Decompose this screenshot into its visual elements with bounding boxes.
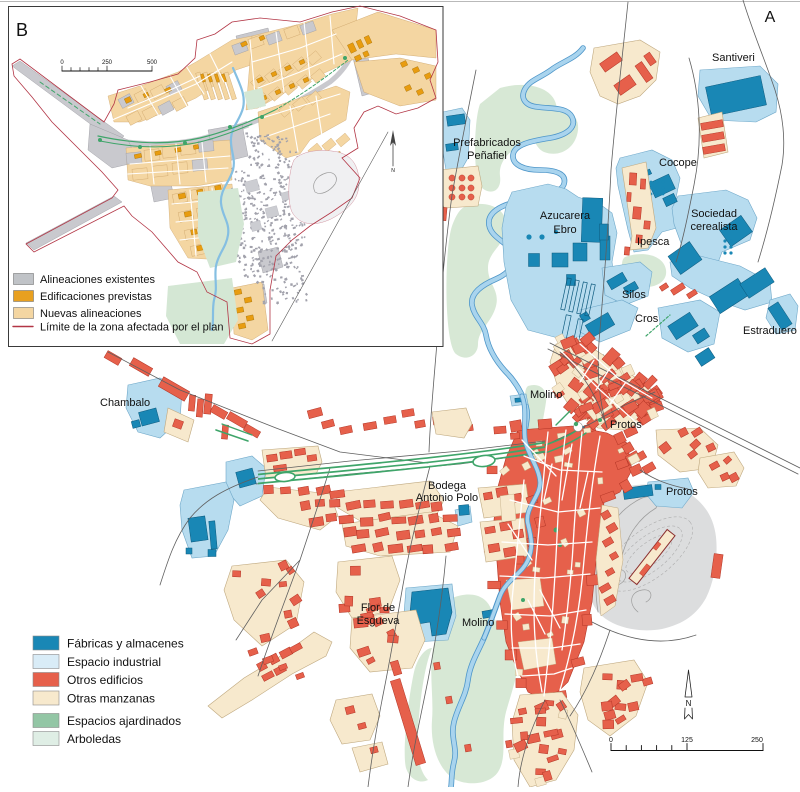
svg-text:Protos: Protos <box>666 486 698 498</box>
svg-text:Estraduero: Estraduero <box>743 325 797 337</box>
svg-text:Otras manzanas: Otras manzanas <box>67 692 155 706</box>
svg-text:250: 250 <box>751 737 763 744</box>
svg-text:B: B <box>16 20 28 40</box>
svg-text:Esgueva: Esgueva <box>357 615 401 627</box>
svg-text:Cocope: Cocope <box>659 157 697 169</box>
svg-text:Molino: Molino <box>462 617 494 629</box>
svg-text:Nuevas alineaciones: Nuevas alineaciones <box>40 308 142 320</box>
svg-text:125: 125 <box>681 737 693 744</box>
svg-text:Silos: Silos <box>622 289 646 301</box>
svg-text:Peñafiel: Peñafiel <box>467 150 507 162</box>
svg-text:Espacio industrial: Espacio industrial <box>67 655 161 669</box>
svg-text:Alineaciones existentes: Alineaciones existentes <box>40 274 155 286</box>
svg-text:cerealista: cerealista <box>690 221 738 233</box>
svg-text:Fábricas y almacenes: Fábricas y almacenes <box>67 637 184 651</box>
svg-text:Límite de la zona afectada por: Límite de la zona afectada por el plan <box>40 322 223 334</box>
svg-text:Cros: Cros <box>635 313 659 325</box>
svg-text:Protos: Protos <box>610 419 642 431</box>
svg-text:Sociedad: Sociedad <box>691 208 737 220</box>
svg-text:Arboledas: Arboledas <box>67 732 121 746</box>
svg-text:Edificaciones previstas: Edificaciones previstas <box>40 291 152 303</box>
svg-text:Santiveri: Santiveri <box>712 52 755 64</box>
svg-text:250: 250 <box>102 60 113 66</box>
svg-text:Otros edificios: Otros edificios <box>67 673 143 687</box>
svg-text:Flor de: Flor de <box>361 602 395 614</box>
svg-text:Espacios ajardinados: Espacios ajardinados <box>67 714 181 728</box>
svg-text:N: N <box>686 699 692 708</box>
svg-text:Prefabricados: Prefabricados <box>453 137 521 149</box>
svg-text:Ebro: Ebro <box>553 224 576 236</box>
svg-text:Bodega: Bodega <box>428 480 467 492</box>
svg-text:N: N <box>391 168 395 174</box>
svg-text:Antonio Polo: Antonio Polo <box>416 492 478 504</box>
svg-text:Molino: Molino <box>530 389 562 401</box>
svg-text:Chambalo: Chambalo <box>100 397 150 409</box>
svg-text:0: 0 <box>609 737 613 744</box>
svg-text:Azucarera: Azucarera <box>540 210 591 222</box>
svg-text:A: A <box>765 9 776 26</box>
svg-text:Ipesca: Ipesca <box>637 236 670 248</box>
svg-text:500: 500 <box>147 60 158 66</box>
